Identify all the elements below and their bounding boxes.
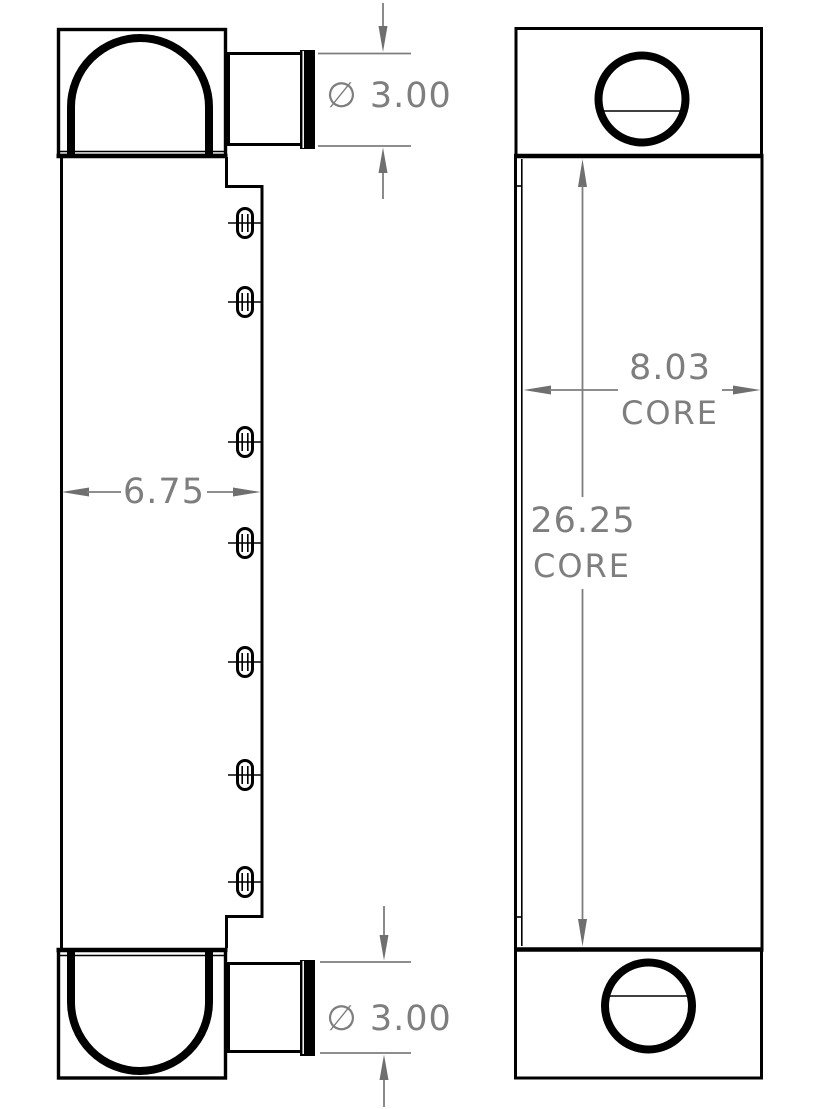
dimension-core-width-suffix: CORE [621, 394, 719, 432]
mounting-slot [228, 209, 262, 238]
arrowhead-down-icon [578, 919, 587, 947]
arrowhead-left-icon [62, 488, 90, 497]
side-bottom-tank [59, 950, 226, 1078]
technical-drawing: ∅ 3.00 ∅ 3.00 6.75 8.03 CORE [0, 0, 820, 1109]
side-top-tank [59, 30, 226, 156]
mounting-slot [228, 648, 262, 677]
arrowhead-up-icon [578, 159, 587, 187]
arrowhead-left-icon [524, 386, 552, 395]
mounting-slots-column [228, 209, 262, 897]
side-bottom-port [229, 964, 302, 1052]
drawing-canvas: ∅ 3.00 ∅ 3.00 6.75 8.03 CORE [0, 0, 820, 1109]
arrowhead-up-icon [379, 148, 388, 174]
front-top-port-circle [599, 56, 686, 143]
dimension-core-height-value: 26.25 [530, 501, 635, 541]
dimension-core-width: 8.03 CORE [524, 348, 761, 432]
side-top-port [229, 54, 302, 145]
dimension-top-port-diameter-label: ∅ 3.00 [326, 76, 452, 116]
side-top-dome [71, 38, 209, 157]
dimension-overall-width: 6.75 [62, 472, 261, 512]
dimensions: ∅ 3.00 ∅ 3.00 6.75 8.03 CORE [62, 3, 761, 1107]
arrowhead-right-icon [733, 386, 761, 395]
arrowhead-up-icon [380, 1055, 389, 1081]
mounting-slot [228, 529, 262, 558]
mounting-slot [228, 761, 262, 790]
mounting-slot [228, 288, 262, 317]
side-top-port-cap [300, 50, 315, 149]
dimension-overall-width-label: 6.75 [123, 472, 205, 512]
front-bottom-tank [516, 950, 762, 1079]
front-bottom-port-circle [605, 963, 692, 1050]
side-view [57, 30, 316, 1079]
dimension-core-height-suffix: CORE [533, 547, 631, 585]
mounting-slot [228, 868, 262, 897]
arrowhead-right-icon [233, 488, 261, 497]
arrowhead-down-icon [380, 935, 389, 961]
dimension-core-height: 26.25 CORE [530, 159, 635, 947]
arrowhead-down-icon [379, 26, 388, 52]
side-body-flange-edge [227, 157, 263, 948]
dimension-top-port-diameter: ∅ 3.00 [318, 3, 452, 199]
front-top-tank [516, 29, 762, 156]
mounting-slot [228, 428, 262, 457]
dimension-bottom-port-diameter-label: ∅ 3.00 [326, 999, 452, 1039]
dimension-bottom-port-diameter: ∅ 3.00 [320, 906, 452, 1107]
side-bottom-port-cap [300, 960, 315, 1056]
side-bottom-dome [71, 949, 209, 1071]
dimension-core-width-value: 8.03 [629, 348, 711, 388]
